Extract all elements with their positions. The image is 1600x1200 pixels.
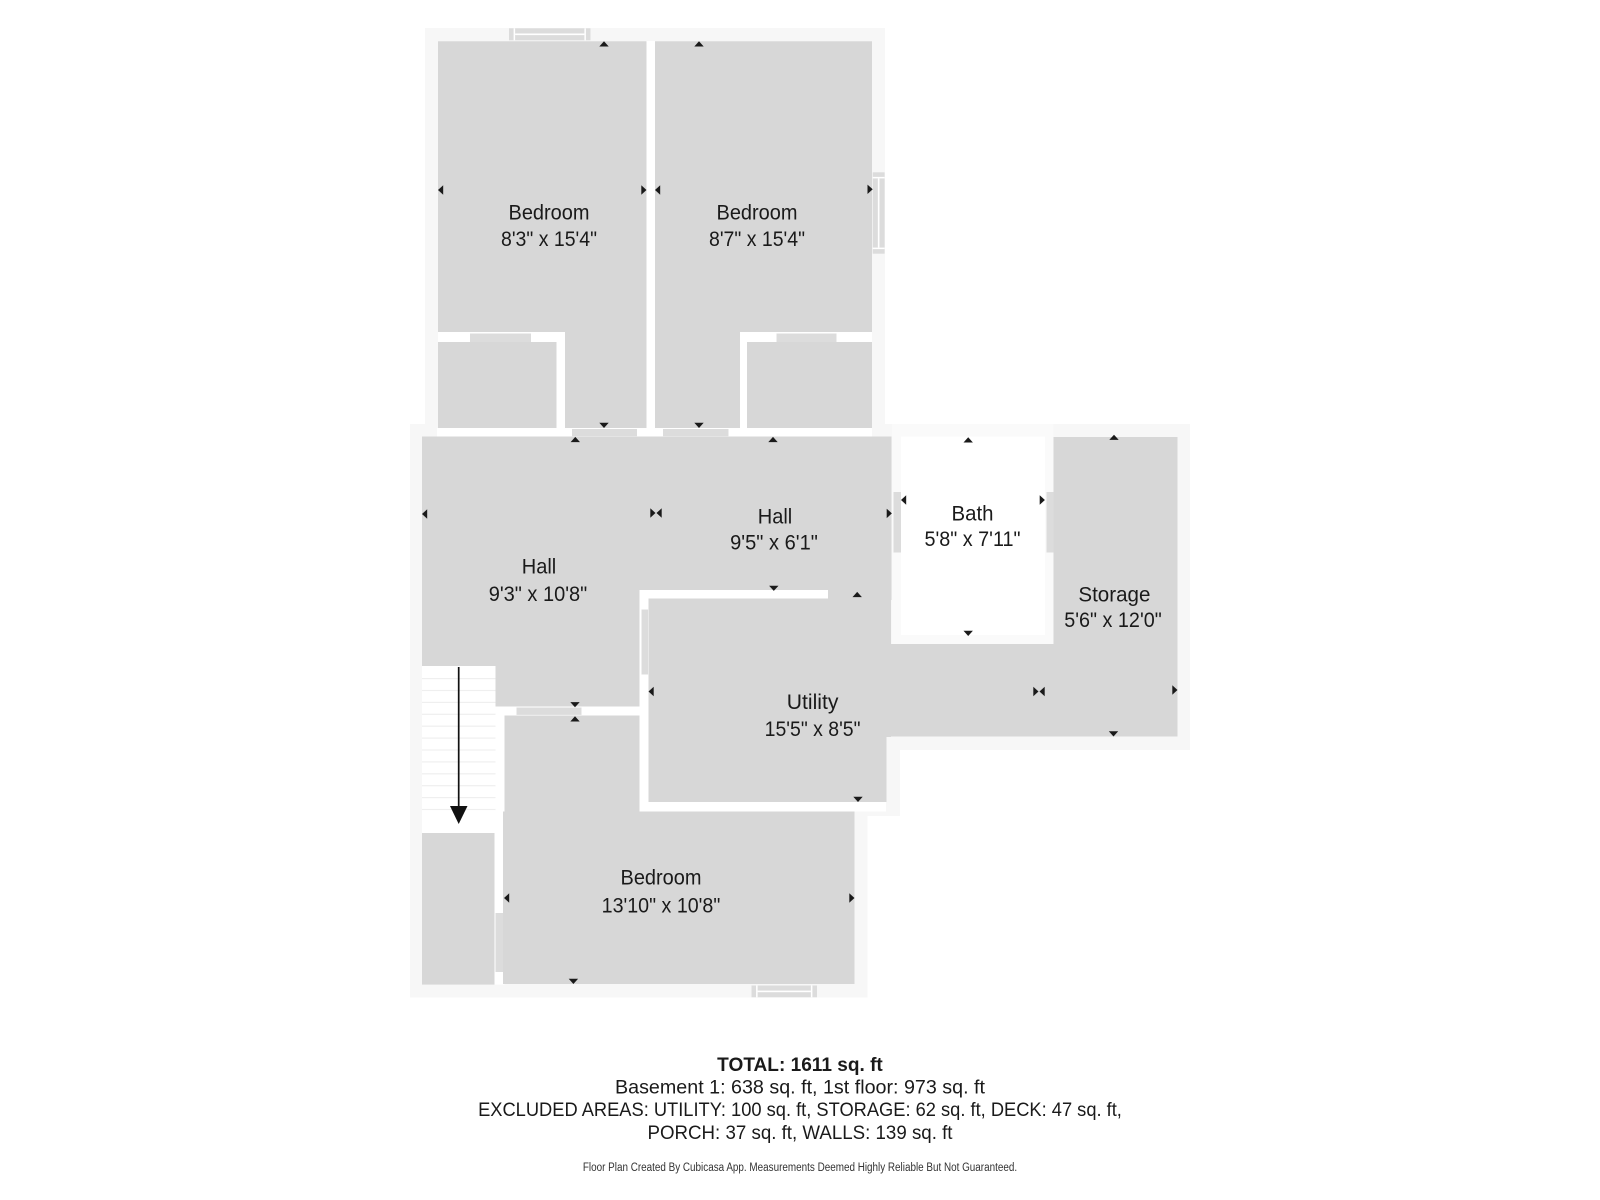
svg-text:Bedroom: Bedroom (717, 200, 798, 224)
svg-text:Bedroom: Bedroom (621, 866, 702, 890)
svg-text:5'8" x 7'11": 5'8" x 7'11" (925, 527, 1021, 551)
svg-text:8'7" x 15'4": 8'7" x 15'4" (709, 227, 805, 251)
svg-text:Hall: Hall (522, 555, 557, 579)
svg-text:9'5" x 6'1": 9'5" x 6'1" (730, 531, 818, 555)
svg-text:15'5" x 8'5": 15'5" x 8'5" (765, 717, 861, 741)
svg-text:Floor Plan Created By Cubicasa: Floor Plan Created By Cubicasa App. Meas… (583, 1162, 1017, 1174)
svg-text:Basement 1: 638 sq. ft, 1st fl: Basement 1: 638 sq. ft, 1st floor: 973 s… (615, 1078, 986, 1099)
svg-text:Bedroom: Bedroom (509, 200, 590, 224)
svg-text:Storage: Storage (1078, 583, 1150, 607)
svg-text:PORCH: 37 sq. ft, WALLS: 139 s: PORCH: 37 sq. ft, WALLS: 139 sq. ft (648, 1123, 954, 1144)
svg-text:Hall: Hall (758, 505, 793, 529)
svg-text:5'6" x 12'0": 5'6" x 12'0" (1064, 608, 1162, 632)
svg-text:EXCLUDED AREAS: UTILITY: 100 s: EXCLUDED AREAS: UTILITY: 100 sq. ft, STO… (478, 1100, 1122, 1121)
svg-text:13'10" x 10'8": 13'10" x 10'8" (602, 894, 721, 918)
svg-text:TOTAL: 1611 sq. ft: TOTAL: 1611 sq. ft (717, 1055, 883, 1076)
svg-text:8'3" x 15'4": 8'3" x 15'4" (501, 227, 597, 251)
svg-text:9'3" x 10'8": 9'3" x 10'8" (489, 582, 588, 606)
svg-text:Utility: Utility (787, 690, 839, 714)
svg-text:Bath: Bath (952, 502, 994, 526)
